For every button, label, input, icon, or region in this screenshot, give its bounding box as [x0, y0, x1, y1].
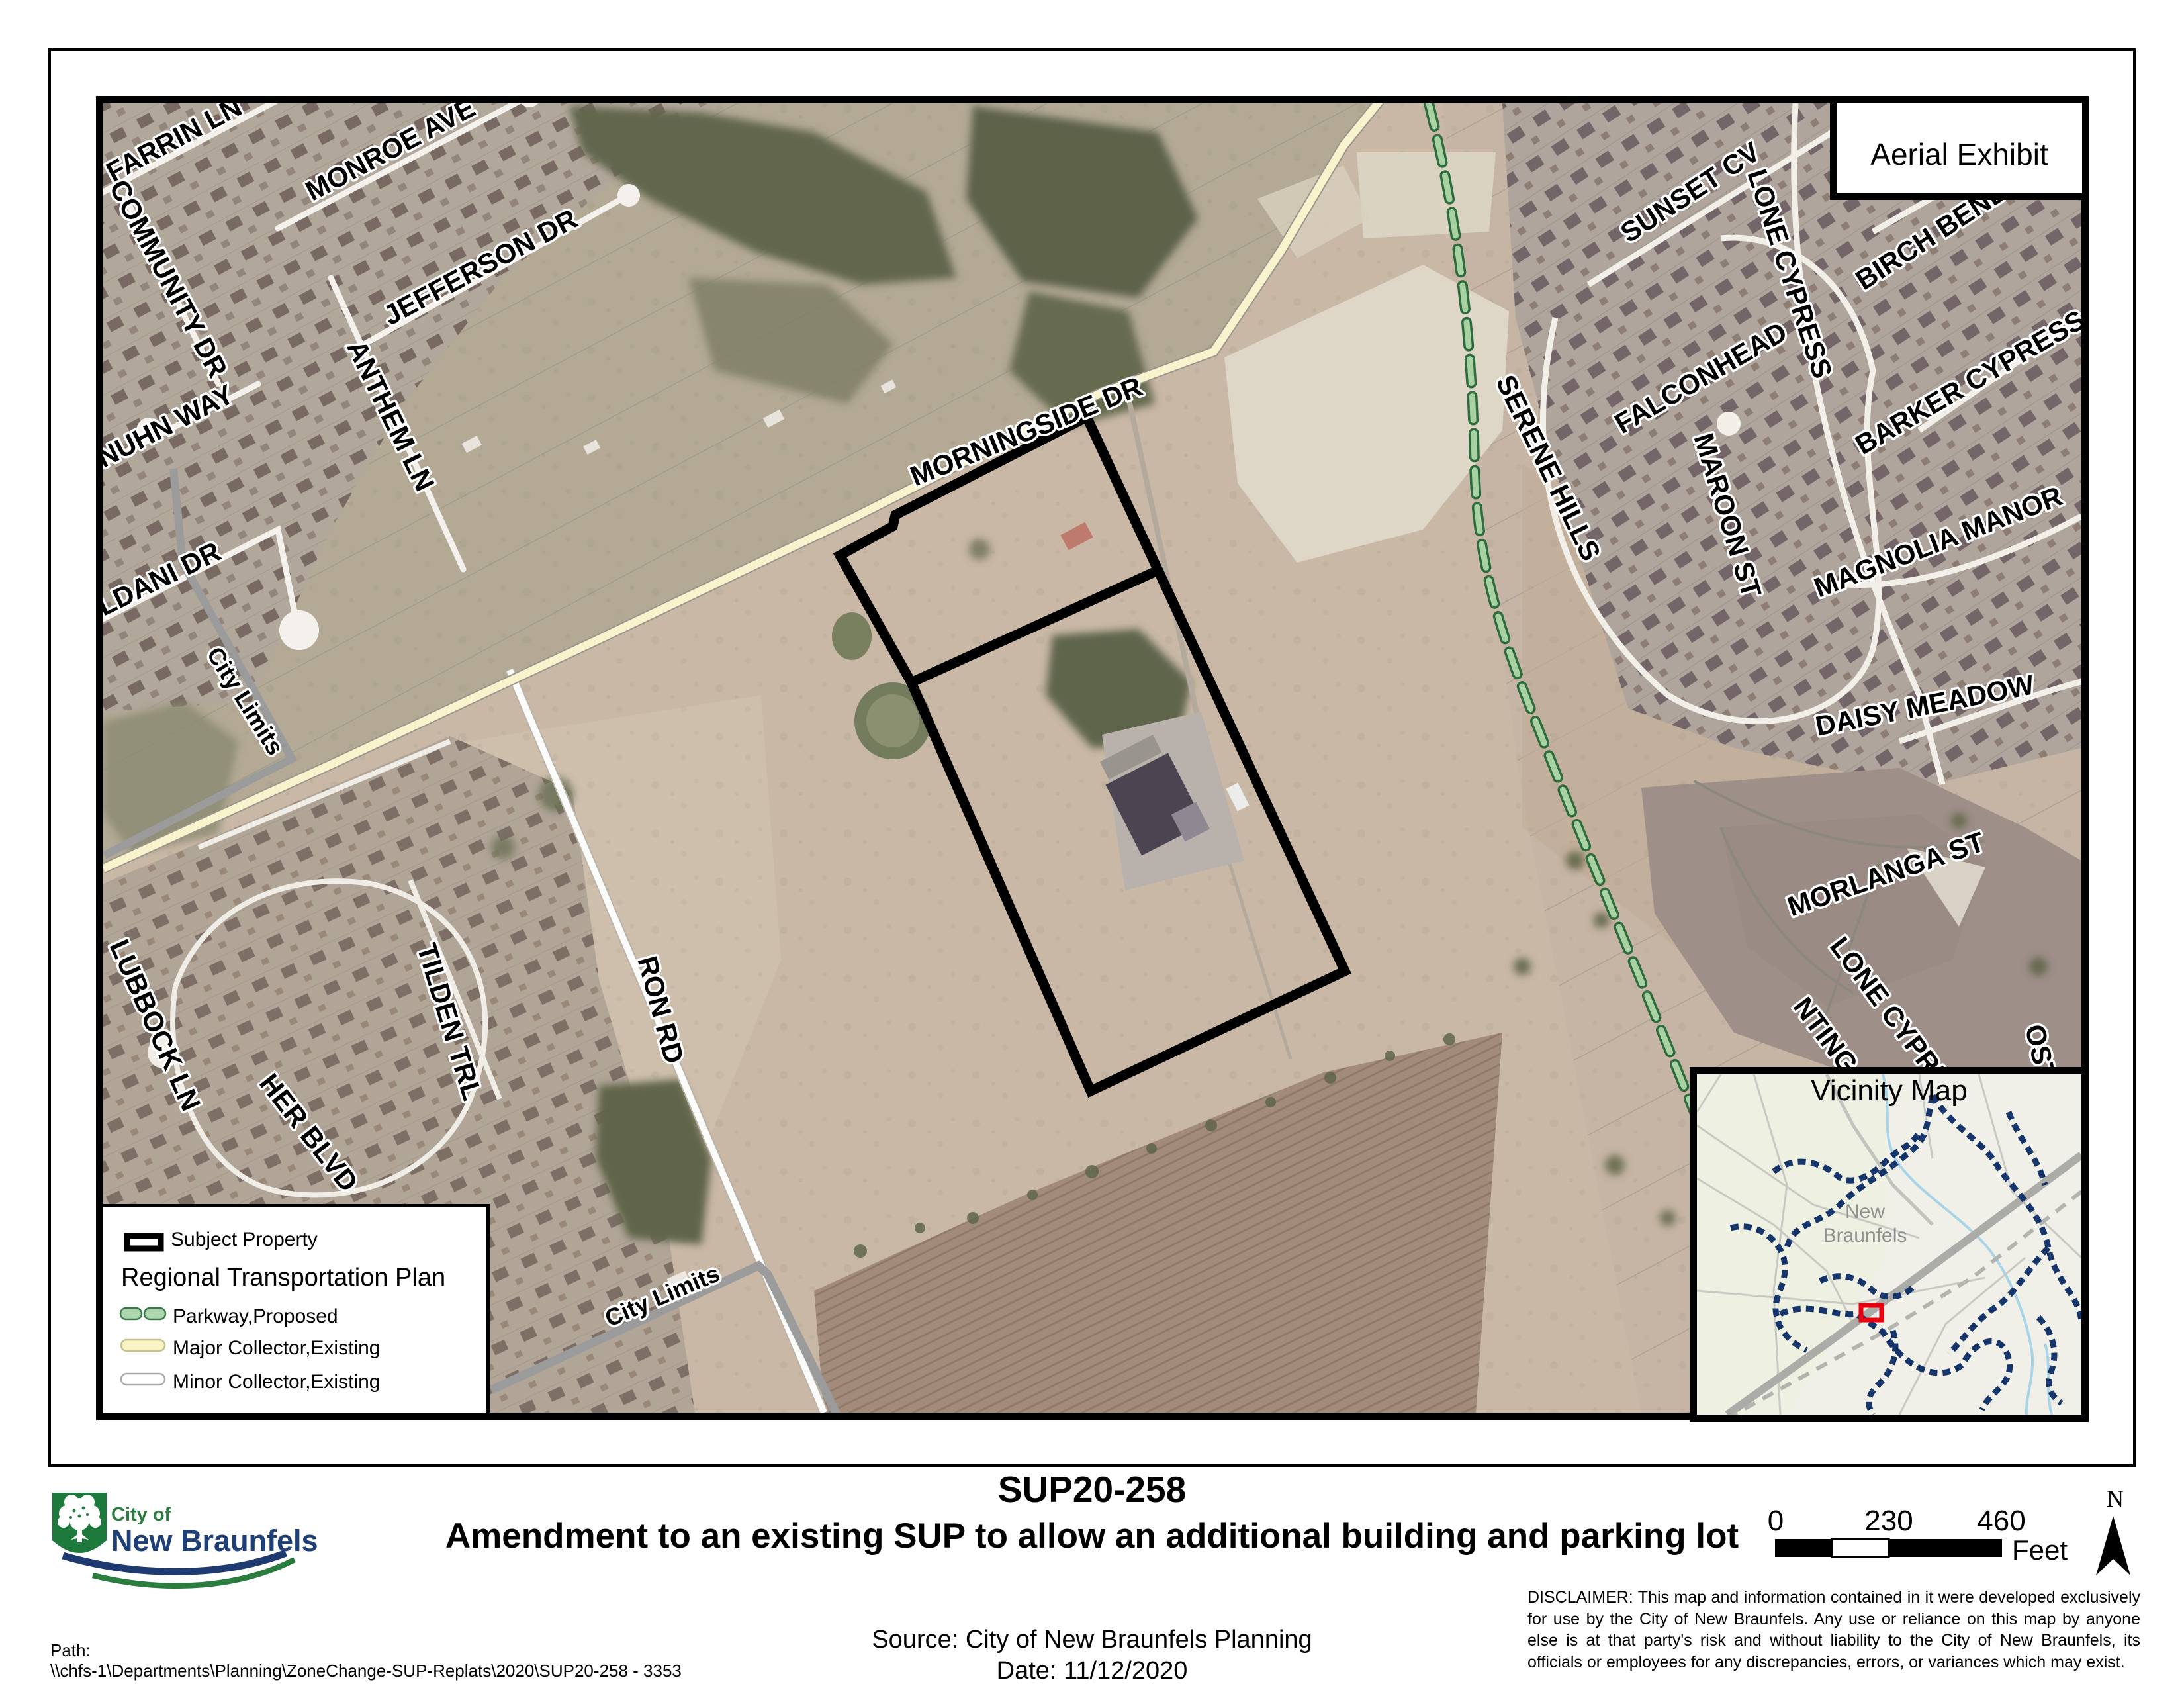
svg-text:New: New	[1845, 1201, 1885, 1223]
svg-text:230: 230	[1864, 1505, 1913, 1537]
svg-text:0: 0	[1768, 1505, 1784, 1537]
svg-text:Subject Property: Subject Property	[171, 1229, 318, 1250]
svg-text:N: N	[2107, 1485, 2124, 1512]
svg-text:City of: City of	[111, 1504, 171, 1525]
svg-text:Parkway,Proposed: Parkway,Proposed	[173, 1305, 338, 1327]
svg-text:460: 460	[1977, 1505, 2025, 1537]
svg-text:Minor Collector,Existing: Minor Collector,Existing	[173, 1371, 380, 1393]
svg-text:New Braunfels: New Braunfels	[111, 1524, 318, 1558]
svg-text:Feet: Feet	[2012, 1534, 2068, 1564]
svg-text:Regional Transportation Plan: Regional Transportation Plan	[121, 1264, 445, 1291]
svg-text:Braunfels: Braunfels	[1823, 1225, 1907, 1246]
svg-text:Major Collector,Existing: Major Collector,Existing	[173, 1337, 380, 1359]
